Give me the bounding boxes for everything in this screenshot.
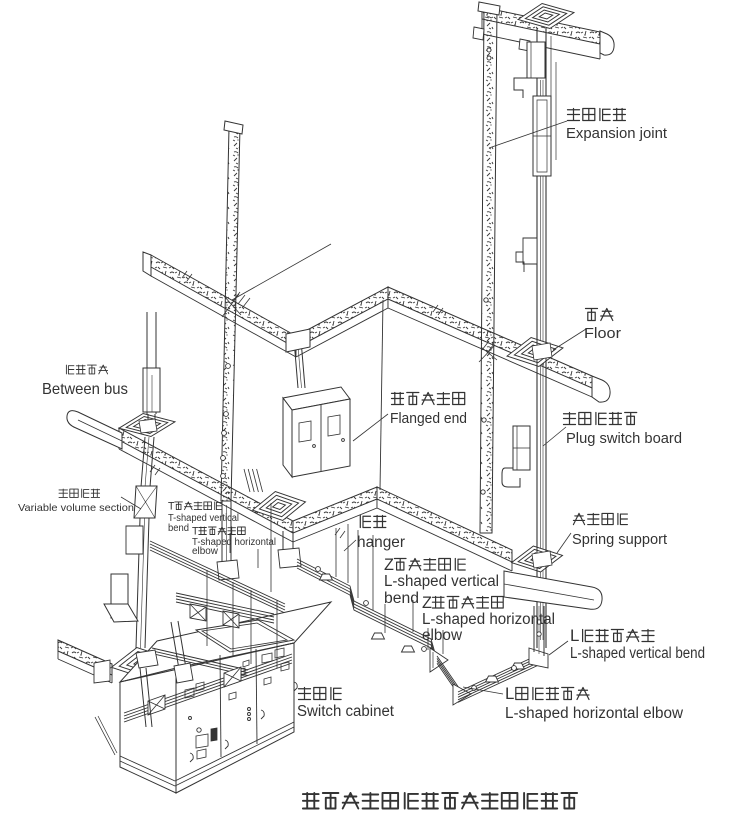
svg-text:elbow: elbow — [422, 627, 463, 644]
svg-text:L: L — [505, 684, 514, 703]
svg-text:bend: bend — [168, 523, 189, 534]
svg-text:L-shaped vertical: L-shaped vertical — [384, 573, 499, 590]
svg-text:Spring support: Spring support — [572, 531, 668, 548]
svg-text:L-shaped horizontal: L-shaped horizontal — [422, 611, 555, 628]
svg-text:Expansion joint: Expansion joint — [566, 125, 668, 142]
svg-text:elbow: elbow — [192, 546, 219, 557]
svg-text:Plug switch board: Plug switch board — [566, 430, 682, 447]
svg-text:hanger: hanger — [357, 534, 406, 551]
svg-text:Flanged end: Flanged end — [390, 410, 467, 427]
svg-text:Z: Z — [422, 594, 432, 612]
svg-text:L: L — [570, 626, 579, 645]
svg-text:Switch cabinet: Switch cabinet — [297, 703, 395, 720]
svg-text:T: T — [192, 525, 199, 537]
svg-text:L-shaped vertical bend: L-shaped vertical bend — [570, 645, 705, 662]
svg-text:Floor: Floor — [584, 325, 621, 342]
svg-text:bend: bend — [384, 590, 419, 607]
svg-text:Z: Z — [384, 556, 394, 574]
svg-text:L-shaped horizontal elbow: L-shaped horizontal elbow — [505, 705, 684, 722]
svg-text:T: T — [168, 500, 175, 512]
svg-text:Between bus: Between bus — [42, 381, 128, 398]
svg-text:Variable volume section: Variable volume section — [18, 502, 134, 514]
